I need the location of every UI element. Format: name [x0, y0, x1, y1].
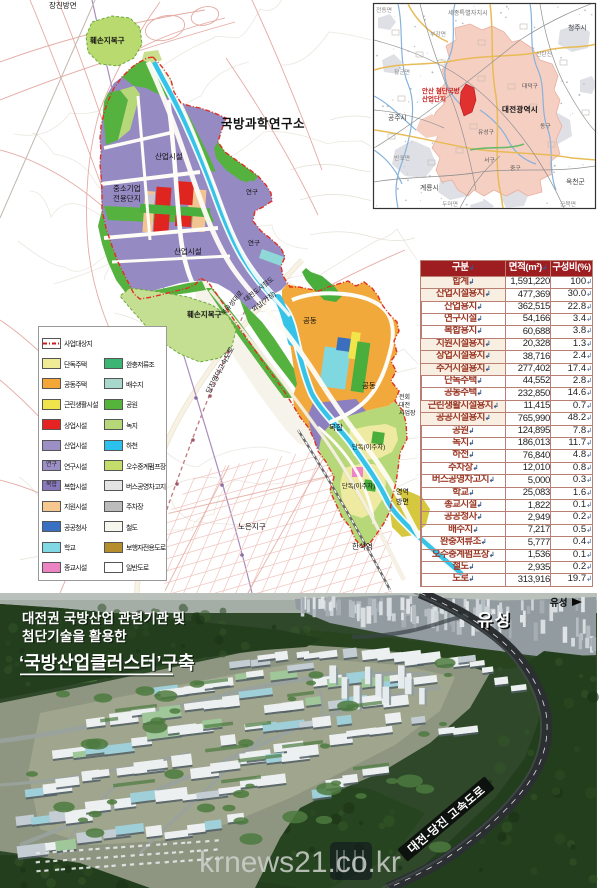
svg-text:서구: 서구 [484, 156, 495, 164]
svg-text:중구: 중구 [510, 165, 521, 172]
svg-text:공동: 공동 [303, 316, 317, 325]
svg-text:산업시설: 산업시설 [174, 246, 202, 256]
svg-text:부강면: 부강면 [430, 30, 446, 38]
svg-text:유성: 유성 [550, 597, 567, 609]
svg-text:공주시: 공주시 [388, 114, 407, 122]
svg-text:신탄진: 신탄진 [536, 50, 552, 58]
svg-text:훼손지복구: 훼손지복구 [90, 35, 125, 45]
svg-text:한석역: 한석역 [352, 541, 373, 551]
svg-text:안산 첨단국방: 안산 첨단국방 [422, 86, 460, 95]
svg-text:옥천군: 옥천군 [566, 177, 585, 186]
svg-text:국방과학연구소: 국방과학연구소 [221, 116, 305, 131]
svg-text:청주시: 청주시 [568, 24, 587, 32]
svg-text:유성구: 유성구 [478, 128, 495, 136]
svg-text:사업장: 사업장 [399, 409, 416, 417]
svg-text:‘국방산업클러스터’구축: ‘국방산업클러스터’구축 [19, 653, 195, 673]
svg-text:연구: 연구 [246, 188, 258, 196]
svg-text:장군면: 장군면 [394, 68, 410, 76]
svg-text:대덕구: 대덕구 [522, 82, 539, 90]
svg-text:첨단기술을 활용한: 첨단기술을 활용한 [22, 628, 127, 644]
svg-text:두마면: 두마면 [442, 200, 458, 208]
svg-text:중소기업: 중소기업 [113, 184, 141, 193]
svg-text:계룡시: 계룡시 [420, 183, 439, 192]
svg-text:대전: 대전 [399, 401, 410, 409]
svg-text:복합: 복합 [329, 423, 343, 432]
svg-text:전동면: 전동면 [376, 6, 392, 14]
svg-text:단독(이주자): 단독(이주자) [342, 481, 375, 490]
svg-text:공동: 공동 [362, 381, 376, 390]
svg-text:단독(이주자): 단독(이주자) [352, 442, 385, 451]
svg-text:영역: 영역 [396, 487, 409, 496]
svg-text:동구: 동구 [540, 123, 551, 130]
svg-text:연구: 연구 [248, 239, 260, 247]
svg-text:전용단지: 전용단지 [113, 193, 141, 203]
svg-text:대전광역시: 대전광역시 [502, 104, 538, 114]
svg-text:krnews21.co.kr: krnews21.co.kr [199, 846, 401, 879]
svg-text:유성: 유성 [477, 611, 512, 630]
svg-text:훼손지복구: 훼손지복구 [187, 309, 222, 319]
svg-text:산업시설: 산업시설 [155, 151, 183, 161]
svg-text:노은지구: 노은지구 [238, 522, 266, 531]
svg-text:군북면: 군북면 [560, 200, 576, 208]
svg-text:전회: 전회 [399, 393, 410, 401]
svg-text:반포면: 반포면 [394, 154, 410, 162]
svg-text:산업단지: 산업단지 [422, 94, 446, 103]
svg-text:세종특별자치시: 세종특별자치시 [448, 9, 488, 17]
svg-text:방면: 방면 [396, 497, 409, 506]
svg-text:대전권 국방산업 관련기관 및: 대전권 국방산업 관련기관 및 [22, 610, 185, 626]
svg-text:장진방면: 장진방면 [49, 0, 77, 10]
